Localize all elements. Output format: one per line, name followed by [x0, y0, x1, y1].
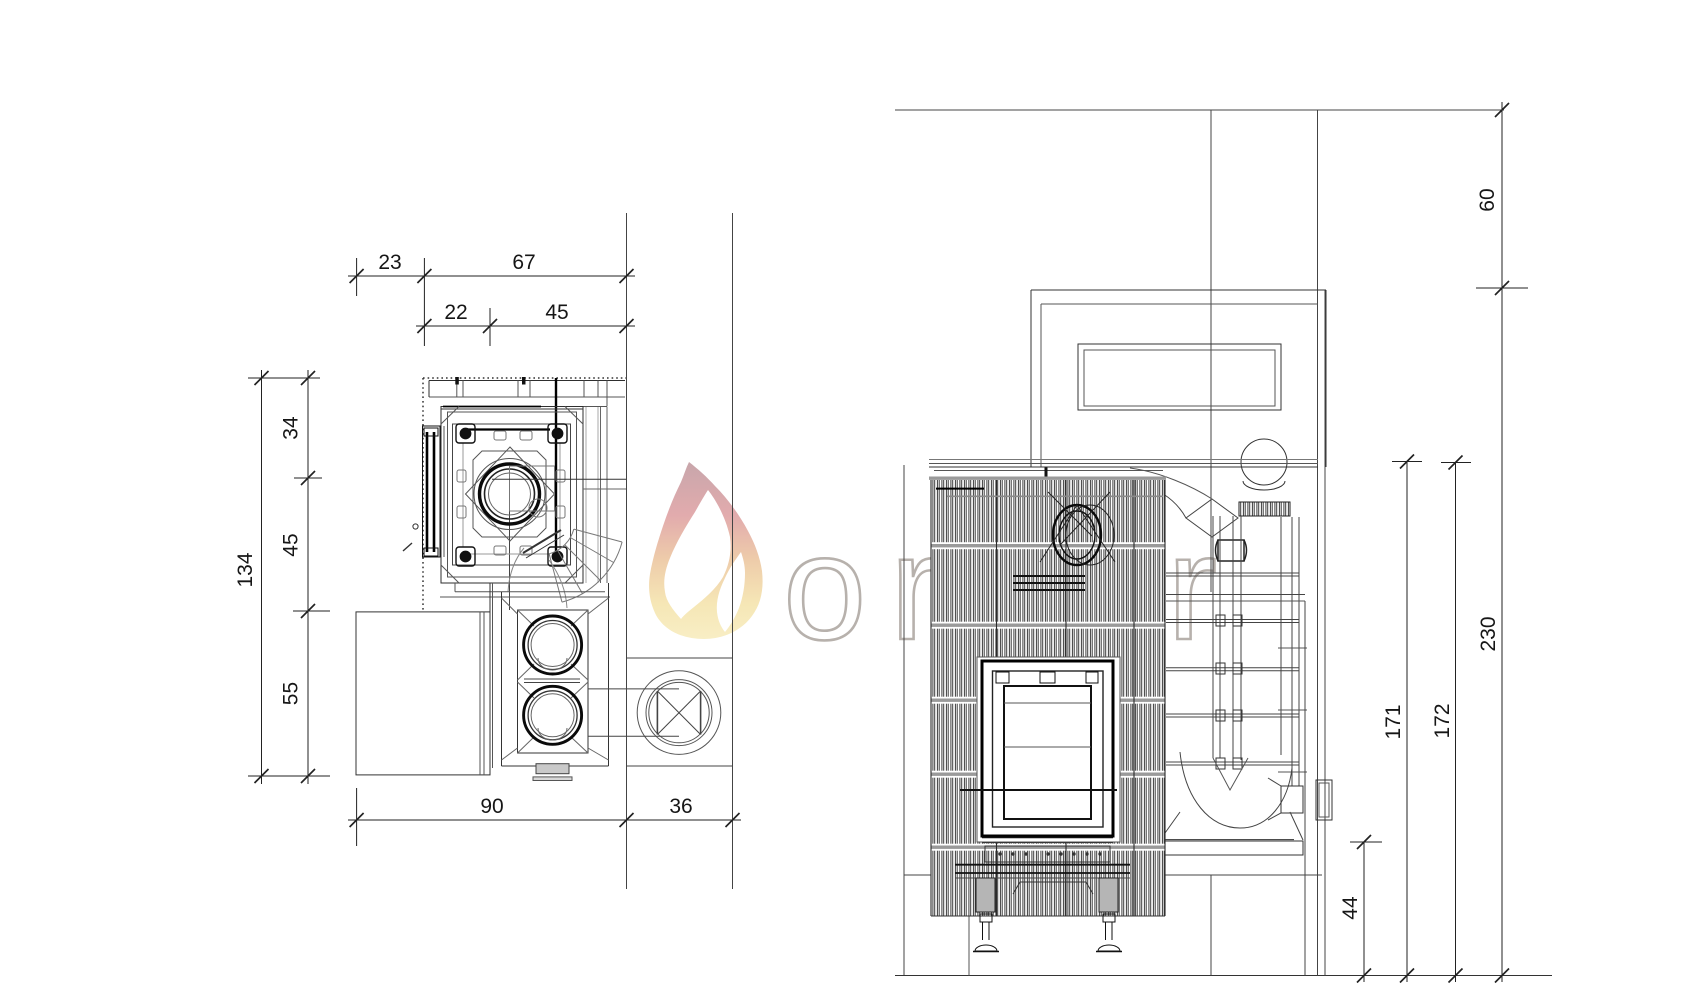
- svg-text:90: 90: [480, 795, 503, 818]
- svg-text:22: 22: [444, 301, 467, 324]
- svg-text:60: 60: [1476, 188, 1499, 211]
- svg-text:44: 44: [1339, 896, 1362, 920]
- svg-text:45: 45: [280, 533, 303, 556]
- svg-text:o: o: [783, 503, 866, 671]
- svg-text:134: 134: [234, 552, 257, 587]
- svg-text:45: 45: [545, 301, 568, 324]
- svg-text:36: 36: [669, 795, 692, 818]
- svg-text:23: 23: [378, 251, 401, 274]
- svg-text:34: 34: [280, 416, 303, 440]
- svg-text:172: 172: [1431, 703, 1454, 738]
- svg-text:67: 67: [512, 251, 535, 274]
- svg-text:230: 230: [1477, 616, 1500, 651]
- svg-text:55: 55: [280, 682, 303, 705]
- svg-text:171: 171: [1382, 704, 1405, 739]
- svg-text:r: r: [1167, 503, 1217, 671]
